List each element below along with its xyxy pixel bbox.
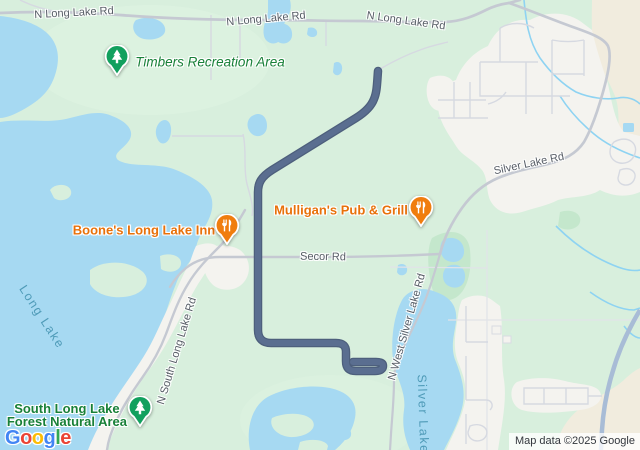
restaurant-pin-boones[interactable]: [214, 214, 240, 245]
logo-letter: g: [44, 427, 56, 449]
logo-letter: G: [5, 427, 20, 449]
road-label-secor-rd: Secor Rd: [300, 251, 346, 264]
map-canvas[interactable]: N Long Lake Rd N Long Lake Rd N Long Lak…: [0, 0, 640, 450]
poi-label-timbers-recreation-area[interactable]: Timbers Recreation Area: [135, 55, 284, 70]
park-pin-south-forest[interactable]: [127, 396, 153, 427]
google-logo[interactable]: Google: [5, 427, 71, 450]
map-attribution: Map data ©2025 Google: [509, 433, 640, 450]
route-casing: [258, 71, 383, 371]
restaurant-pin-mulligans[interactable]: [408, 196, 434, 227]
route-group[interactable]: [258, 71, 383, 371]
logo-letter: o: [20, 427, 32, 449]
restaurant-pin-icon: [216, 214, 239, 244]
logo-letter: o: [32, 427, 44, 449]
restaurant-pin-icon: [410, 196, 433, 226]
poi-label-south-long-lake-forest[interactable]: South Long Lake Forest Natural Area: [7, 402, 127, 428]
park-pin-timbers[interactable]: [104, 45, 130, 76]
poi-label-boones-long-lake-inn[interactable]: Boone's Long Lake Inn: [73, 223, 216, 238]
poi-label-mulligans-pub-grill[interactable]: Mulligan's Pub & Grill: [274, 203, 408, 218]
water-label-silver-lake: Silver Lake: [415, 374, 432, 450]
logo-letter: e: [60, 427, 71, 449]
